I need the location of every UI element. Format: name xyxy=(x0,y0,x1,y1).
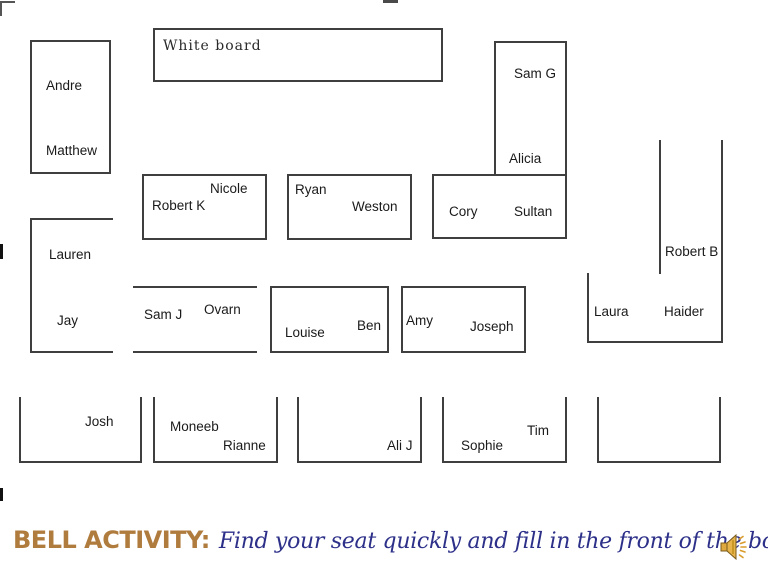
seat-label-robert-b: Robert B xyxy=(665,244,718,259)
seat-box-lauren-jay: Lauren Jay xyxy=(30,218,113,353)
seat-box-andre-matthew: Andre Matthew xyxy=(30,40,111,174)
seat-label-alicia: Alicia xyxy=(509,151,541,166)
left-edge-mark-lower xyxy=(0,488,3,501)
seat-label-laura: Laura xyxy=(594,304,629,319)
seat-label-haider: Haider xyxy=(664,304,704,319)
seat-label-amy: Amy xyxy=(406,313,433,328)
seat-label-ryan: Ryan xyxy=(295,182,327,197)
seat-label-tim: Tim xyxy=(527,423,549,438)
seat-box-samg-alicia: Sam G Alicia xyxy=(494,41,567,176)
seat-box-amy-joseph: Amy Joseph xyxy=(401,286,526,353)
seat-box-cory-sultan: Cory Sultan xyxy=(432,174,567,239)
seat-box-louise-ben: Louise Ben xyxy=(270,286,389,353)
seat-label-cory: Cory xyxy=(449,204,478,219)
seat-label-sam-g: Sam G xyxy=(514,66,556,81)
bell-activity-banner: BELL ACTIVITY: Find your seat quickly an… xyxy=(13,526,768,554)
seat-label-andre: Andre xyxy=(46,78,82,93)
seat-label-jay: Jay xyxy=(57,313,78,328)
robertb-left-line xyxy=(659,140,661,274)
bell-activity-label: BELL ACTIVITY: xyxy=(13,526,210,554)
seat-label-ben: Ben xyxy=(357,318,381,333)
seat-box-robertk-nicole: Nicole Robert K xyxy=(142,174,267,240)
left-edge-mark-upper xyxy=(0,244,3,259)
seat-label-joseph: Joseph xyxy=(470,319,514,334)
seat-label-nicole: Nicole xyxy=(210,181,248,196)
top-edge-dash-mark xyxy=(383,0,398,3)
seat-label-ali-j: Ali J xyxy=(387,438,413,453)
seat-box-samj-ovarn: Sam J Ovarn xyxy=(133,286,257,353)
seat-label-josh: Josh xyxy=(85,414,114,429)
speaker-sound-icon[interactable] xyxy=(717,531,749,563)
seat-label-sam-j: Sam J xyxy=(144,307,182,322)
seat-label-rianne: Rianne xyxy=(223,438,266,453)
seat-label-weston: Weston xyxy=(352,199,398,214)
seat-label-robert-k: Robert K xyxy=(152,198,205,213)
seat-label-sophie: Sophie xyxy=(461,438,503,453)
seat-box-josh: Josh xyxy=(19,397,142,463)
seat-box-moneeb-rianne: Moneeb Rianne xyxy=(153,397,278,463)
speaker-icon-graphic xyxy=(717,531,749,563)
whiteboard-box: White board xyxy=(153,28,443,82)
top-left-corner-mark xyxy=(0,1,15,16)
seat-box-alij: Ali J xyxy=(297,397,422,463)
seat-label-moneeb: Moneeb xyxy=(170,419,219,434)
bell-activity-message: Find your seat quickly and fill in the f… xyxy=(219,529,768,554)
seat-label-louise: Louise xyxy=(285,325,325,340)
seat-box-empty xyxy=(597,397,721,463)
seat-box-laura-haider: Laura Haider xyxy=(587,273,722,343)
seat-label-sultan: Sultan xyxy=(514,204,552,219)
seat-label-matthew: Matthew xyxy=(46,143,97,158)
seat-label-lauren: Lauren xyxy=(49,247,91,262)
seating-chart-slide: White board Andre Matthew Sam G Alicia N… xyxy=(0,0,768,576)
seat-box-sophie-tim: Sophie Tim xyxy=(442,397,567,463)
seat-label-ovarn: Ovarn xyxy=(204,302,241,317)
whiteboard-label: White board xyxy=(163,38,262,54)
seat-box-ryan-weston: Ryan Weston xyxy=(287,174,412,240)
